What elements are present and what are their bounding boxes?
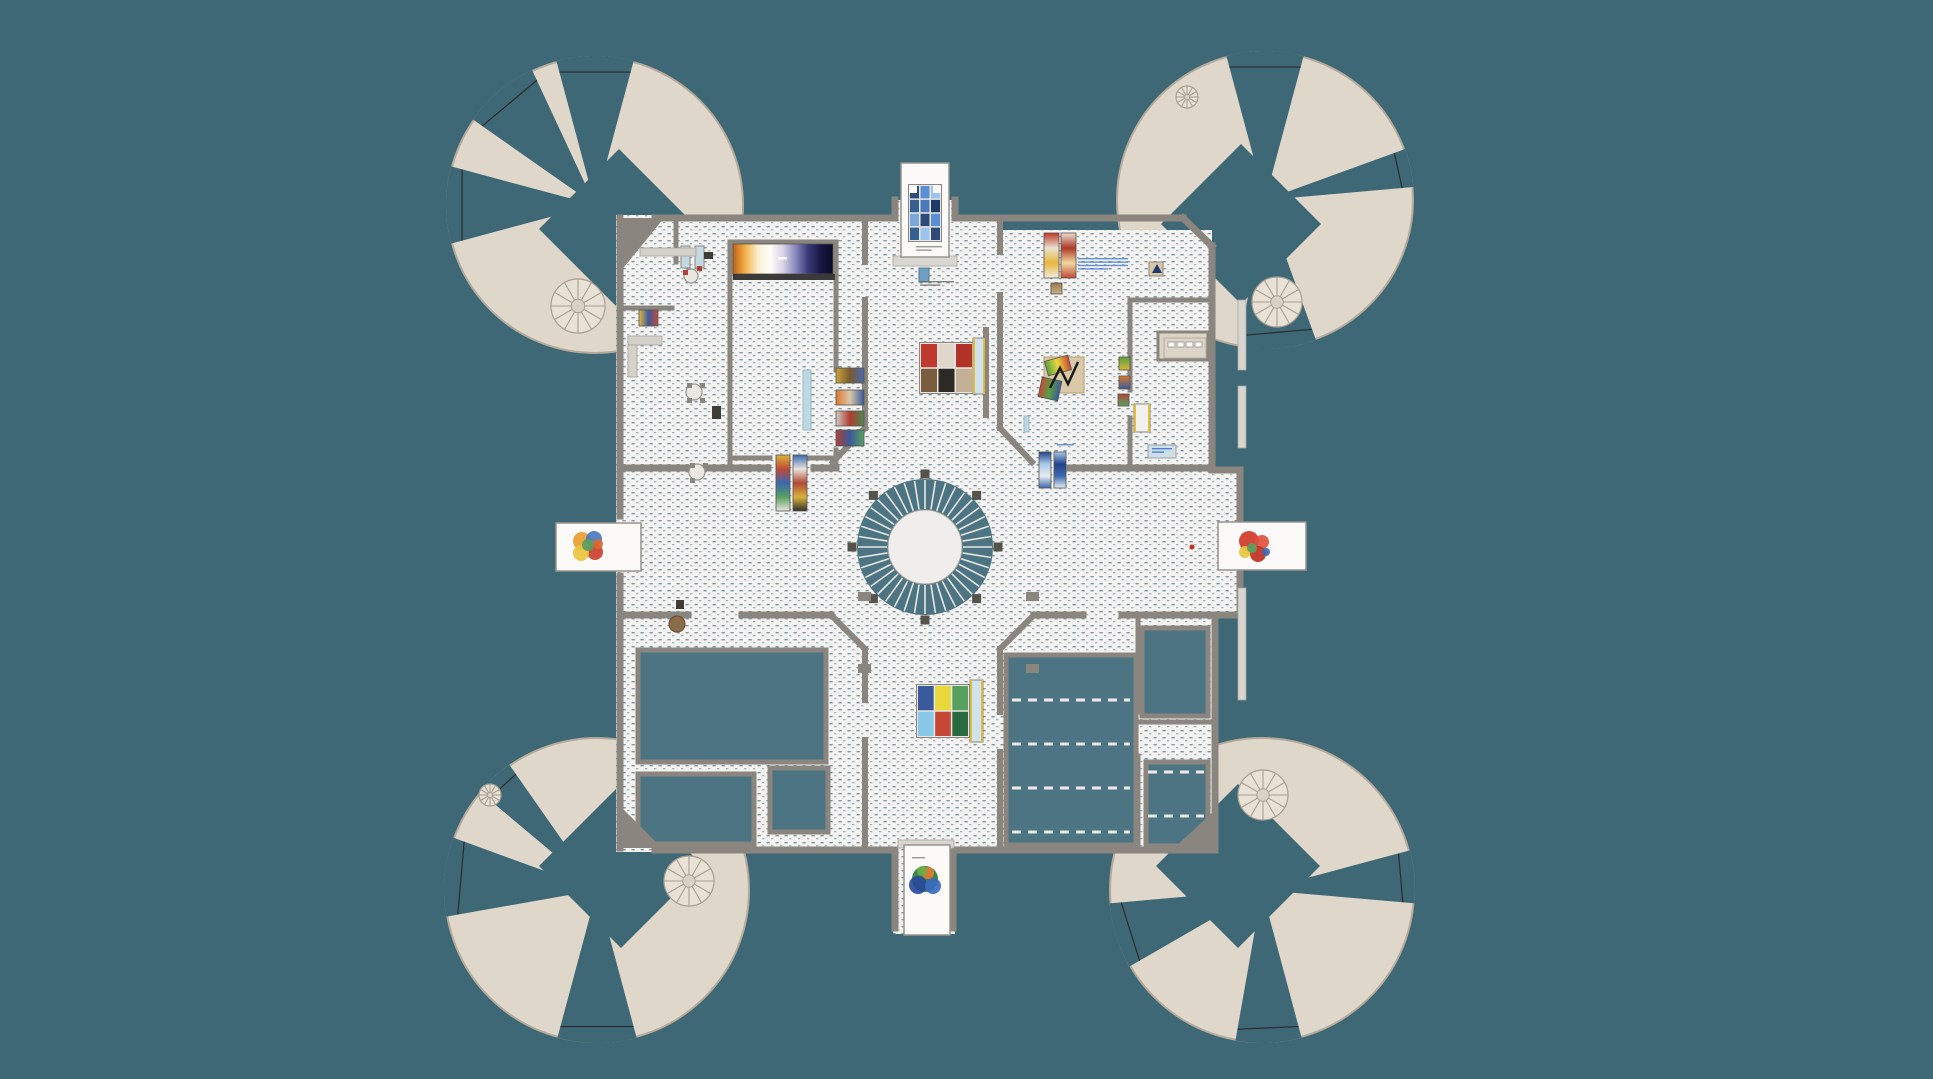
panel-body [919, 268, 929, 282]
label-line [1078, 268, 1108, 269]
central-rotunda [848, 470, 1003, 625]
bench-left-gallery [803, 370, 811, 430]
art-cell [952, 686, 968, 710]
counter-north [640, 248, 696, 256]
door-object-blue [919, 268, 929, 282]
shelf-frame [1195, 342, 1202, 347]
art-cell [931, 200, 940, 212]
case-edge [1134, 404, 1136, 432]
artwork-small-square [1051, 283, 1062, 294]
blob-dab [593, 539, 603, 549]
banner-comet-streak [778, 257, 787, 260]
art-cell [918, 712, 934, 736]
chair [700, 398, 705, 403]
label-line [1078, 265, 1128, 266]
room-br-2 [1142, 628, 1208, 716]
panel-body [803, 370, 811, 430]
rotunda-pier [921, 616, 930, 625]
art-cell [931, 214, 940, 226]
panel-body [1164, 338, 1206, 358]
display-column-right-2 [1054, 452, 1066, 488]
art-surface [1119, 357, 1130, 370]
label-line [1078, 258, 1128, 259]
artwork-tapestry-3 [836, 411, 864, 426]
art-cell [939, 369, 955, 392]
panel-body [1024, 416, 1029, 432]
artwork-arch-stained-glass [909, 185, 942, 242]
art-surface [836, 411, 864, 426]
blob-dab [917, 866, 927, 876]
stair-newel [1257, 789, 1270, 802]
art-surface [1038, 377, 1062, 401]
wall-pier [1026, 592, 1039, 601]
dark-fixture [676, 600, 684, 609]
rotunda-pier [972, 594, 981, 603]
spiral-staircase [1238, 770, 1288, 820]
art-surface [1039, 452, 1051, 488]
rotunda-pier [921, 470, 930, 479]
artwork-hanging-2 [1061, 233, 1076, 278]
case-body [1134, 404, 1150, 432]
spiral-staircase [551, 279, 605, 333]
floor-plan [0, 0, 1933, 1079]
stair-newel [683, 875, 696, 888]
blob-dab [582, 539, 594, 551]
artwork-strip-3 [1118, 394, 1129, 406]
art-surface [793, 455, 807, 511]
chair [687, 398, 692, 403]
spiral-staircase [479, 784, 501, 806]
case-edge [973, 338, 975, 394]
label-line [1152, 448, 1172, 449]
label-line [916, 249, 932, 250]
label-line [920, 281, 954, 282]
art-cell [921, 344, 937, 367]
room-bl-1 [638, 650, 826, 762]
artwork-topleft-small [639, 310, 658, 326]
counter-top [628, 336, 662, 345]
art-surface [1119, 376, 1130, 389]
wall-pier [858, 664, 871, 673]
art-cell [921, 186, 930, 198]
artwork-west-flower [573, 531, 603, 561]
art-cell [910, 228, 919, 240]
art-surface [836, 430, 864, 446]
label-south-panel [912, 857, 925, 858]
stair-newel [487, 792, 493, 798]
artwork-south-stained-glass [917, 685, 970, 738]
chair [700, 383, 705, 388]
case-edge [983, 338, 985, 394]
art-cell [931, 228, 940, 240]
artwork-platform-red [1038, 377, 1062, 401]
chair [690, 478, 695, 483]
wall-pier [858, 592, 871, 601]
spiral-staircase [1176, 86, 1198, 108]
counter-side [628, 345, 637, 377]
shelf-with-frames [1164, 338, 1206, 358]
spiral-staircase [1252, 277, 1302, 327]
floor-text-blue-2 [1057, 444, 1074, 445]
art-surface [639, 310, 658, 326]
artwork-red-panel-grid [920, 343, 974, 394]
artwork-strip-1 [1119, 357, 1130, 370]
art-cell [952, 712, 968, 736]
chair-red [697, 266, 702, 271]
art-cell [921, 200, 930, 212]
arch-corner [933, 185, 941, 193]
art-cell [939, 344, 955, 367]
artwork-strip-2 [1119, 376, 1130, 389]
art-surface [1054, 452, 1066, 488]
blob-dab [925, 878, 941, 894]
stair-newel [1184, 94, 1190, 100]
chair [690, 463, 695, 468]
chair [687, 383, 692, 388]
case-edge [1148, 404, 1150, 432]
light-wall [1238, 386, 1246, 448]
display-column-left-2 [793, 455, 807, 511]
art-cell [921, 228, 930, 240]
art-cell [910, 214, 919, 226]
artwork-tapestry-2 [836, 390, 864, 405]
art-surface [1061, 233, 1076, 278]
case-body [970, 680, 983, 742]
light-wall [1238, 300, 1246, 370]
label-line [916, 246, 942, 247]
arch-corner [909, 185, 917, 193]
artwork-tapestry-4 [836, 430, 864, 446]
display-column-left-1 [776, 455, 790, 511]
blob-dab [909, 876, 927, 894]
artwork-hanging-1 [1044, 233, 1059, 278]
art-cell [935, 686, 951, 710]
case-edge [970, 680, 972, 742]
art-cell [910, 200, 919, 212]
art-cell [918, 686, 934, 710]
light-wall [1238, 588, 1246, 700]
banner-shelf-hatch [733, 274, 835, 280]
round-table-brown [669, 616, 685, 632]
room-br-1 [1006, 655, 1136, 845]
chair [703, 463, 708, 468]
display-case-b [1134, 404, 1150, 432]
art-surface [1044, 233, 1059, 278]
label-line [1078, 261, 1128, 262]
stair-newel [571, 299, 585, 313]
art-surface [836, 390, 864, 405]
art-cell [921, 369, 937, 392]
chair-red [683, 270, 688, 275]
art-surface [836, 368, 864, 383]
floor-plan-stage [0, 0, 1933, 1079]
art-surface [776, 455, 790, 511]
spiral-staircase [664, 856, 714, 906]
art-surface [1118, 394, 1129, 406]
shelf-frame [1177, 342, 1184, 347]
rotunda-pier [848, 543, 857, 552]
display-case-c [970, 680, 983, 742]
label-line [912, 857, 925, 858]
art-cell [956, 344, 972, 367]
rotunda-pier [994, 543, 1003, 552]
art-cell [921, 214, 930, 226]
label-line [1057, 444, 1074, 445]
case-edge [981, 680, 983, 742]
coffee-machine [712, 406, 721, 419]
art-surface [1051, 283, 1062, 294]
wall-pier [1026, 664, 1039, 673]
blob-dab [1247, 543, 1257, 553]
small-appliance [704, 252, 713, 259]
label-line [920, 284, 940, 285]
artwork-tapestry-1 [836, 368, 864, 383]
label-line [1152, 451, 1164, 452]
stair-newel [1271, 296, 1284, 309]
display-case-a [973, 338, 985, 394]
shelf-frame [1186, 342, 1193, 347]
red-floor-speck [1190, 545, 1195, 550]
art-cell [935, 712, 951, 736]
rotunda-pier [972, 491, 981, 500]
shelf-frame [1168, 342, 1175, 347]
room-bl-3 [770, 768, 828, 832]
display-column-right-1 [1039, 452, 1051, 488]
art-cell [956, 369, 972, 392]
rotunda-pier [869, 491, 878, 500]
bench-right-gallery [1024, 416, 1029, 432]
blob-dab [1262, 548, 1270, 556]
room-bl-2 [638, 774, 754, 844]
rotunda-core [888, 510, 962, 584]
